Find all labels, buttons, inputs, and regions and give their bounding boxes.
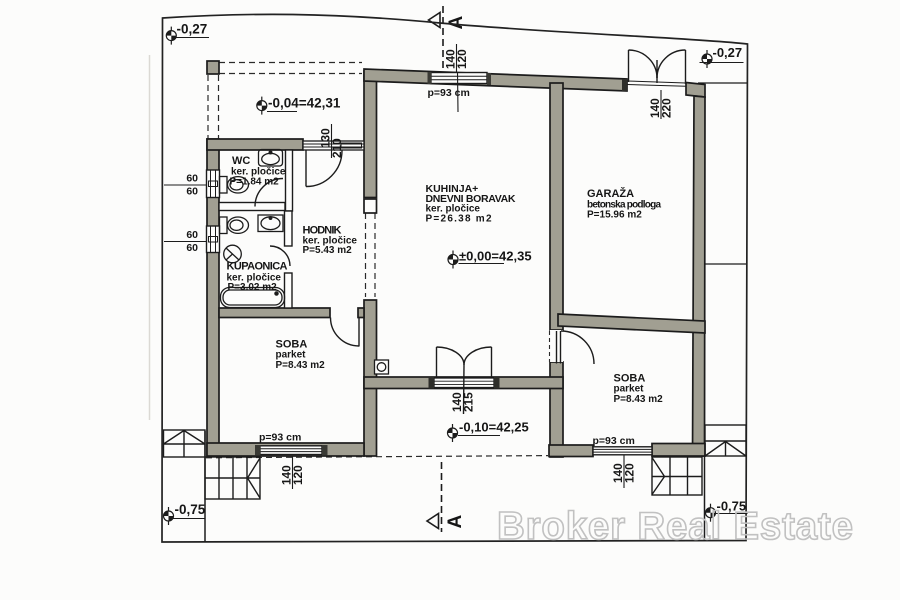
svg-text:GARAŽA: GARAŽA	[587, 187, 634, 200]
svg-text:120: 120	[455, 49, 469, 69]
svg-text:P=3.02 m2: P=3.02 m2	[228, 282, 278, 293]
svg-text:-0,27: -0,27	[177, 22, 208, 37]
svg-text:60: 60	[186, 242, 198, 254]
svg-text:-0,10=42,25: -0,10=42,25	[459, 420, 529, 435]
svg-text:-0,27: -0,27	[713, 45, 743, 60]
svg-text:P=8.43 m2: P=8.43 m2	[614, 394, 664, 405]
svg-text:±0,00=42,35: ±0,00=42,35	[459, 249, 532, 264]
svg-text:parket: parket	[614, 384, 645, 395]
svg-text:WC: WC	[232, 155, 250, 167]
svg-text:-0,04=42,31: -0,04=42,31	[268, 96, 341, 111]
svg-text:A: A	[446, 16, 467, 30]
svg-text:p=93 cm: p=93 cm	[428, 87, 470, 99]
svg-text:Broker Real Estate: Broker Real Estate	[497, 505, 853, 548]
svg-text:120: 120	[291, 465, 305, 485]
svg-text:P=26.38 m2: P=26.38 m2	[426, 214, 492, 225]
svg-text:-0,75: -0,75	[175, 502, 206, 517]
svg-text:parket: parket	[276, 350, 307, 361]
svg-text:P=1.84 m2: P=1.84 m2	[230, 177, 280, 188]
svg-text:210: 210	[330, 138, 344, 158]
svg-text:p=93 cm: p=93 cm	[593, 435, 635, 447]
svg-text:P=5.43 m2: P=5.43 m2	[303, 245, 353, 256]
svg-text:220: 220	[660, 98, 674, 118]
svg-text:P=8.43 m2: P=8.43 m2	[276, 360, 326, 371]
svg-text:120: 120	[623, 463, 637, 483]
svg-text:60: 60	[186, 229, 198, 241]
svg-text:60: 60	[186, 186, 198, 198]
svg-text:60: 60	[186, 173, 198, 185]
svg-text:p=93 cm: p=93 cm	[259, 432, 301, 444]
svg-text:A: A	[445, 515, 466, 529]
svg-text:P=15.96 m2: P=15.96 m2	[587, 210, 642, 221]
svg-text:215: 215	[462, 392, 476, 412]
svg-text:KUPAONICA: KUPAONICA	[227, 261, 288, 273]
